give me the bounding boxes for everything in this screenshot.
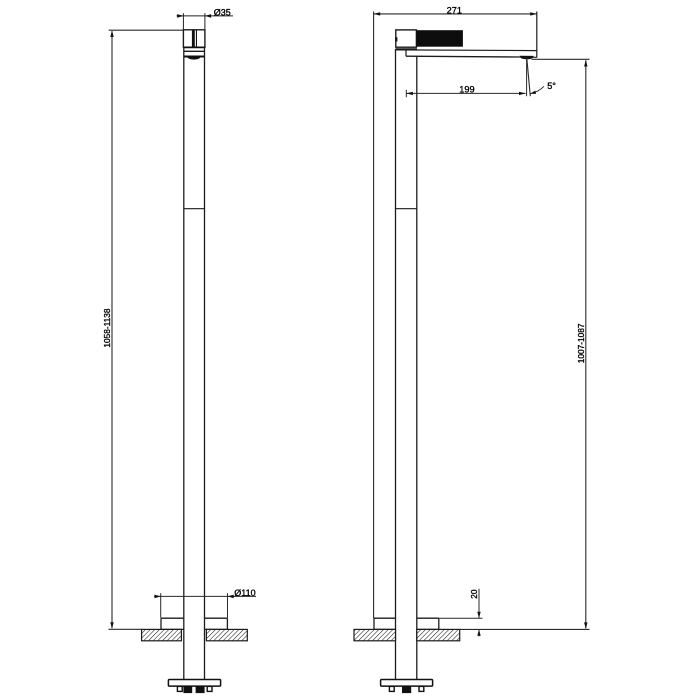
svg-text:20: 20 [469, 589, 479, 599]
svg-text:5°: 5° [547, 81, 556, 91]
svg-text:1058-1138: 1058-1138 [102, 308, 112, 347]
svg-text:271: 271 [447, 5, 462, 15]
svg-text:Ø35: Ø35 [214, 7, 231, 17]
svg-text:199: 199 [459, 85, 474, 95]
svg-text:Ø110: Ø110 [234, 588, 255, 598]
svg-text:1007-1087: 1007-1087 [576, 323, 586, 363]
